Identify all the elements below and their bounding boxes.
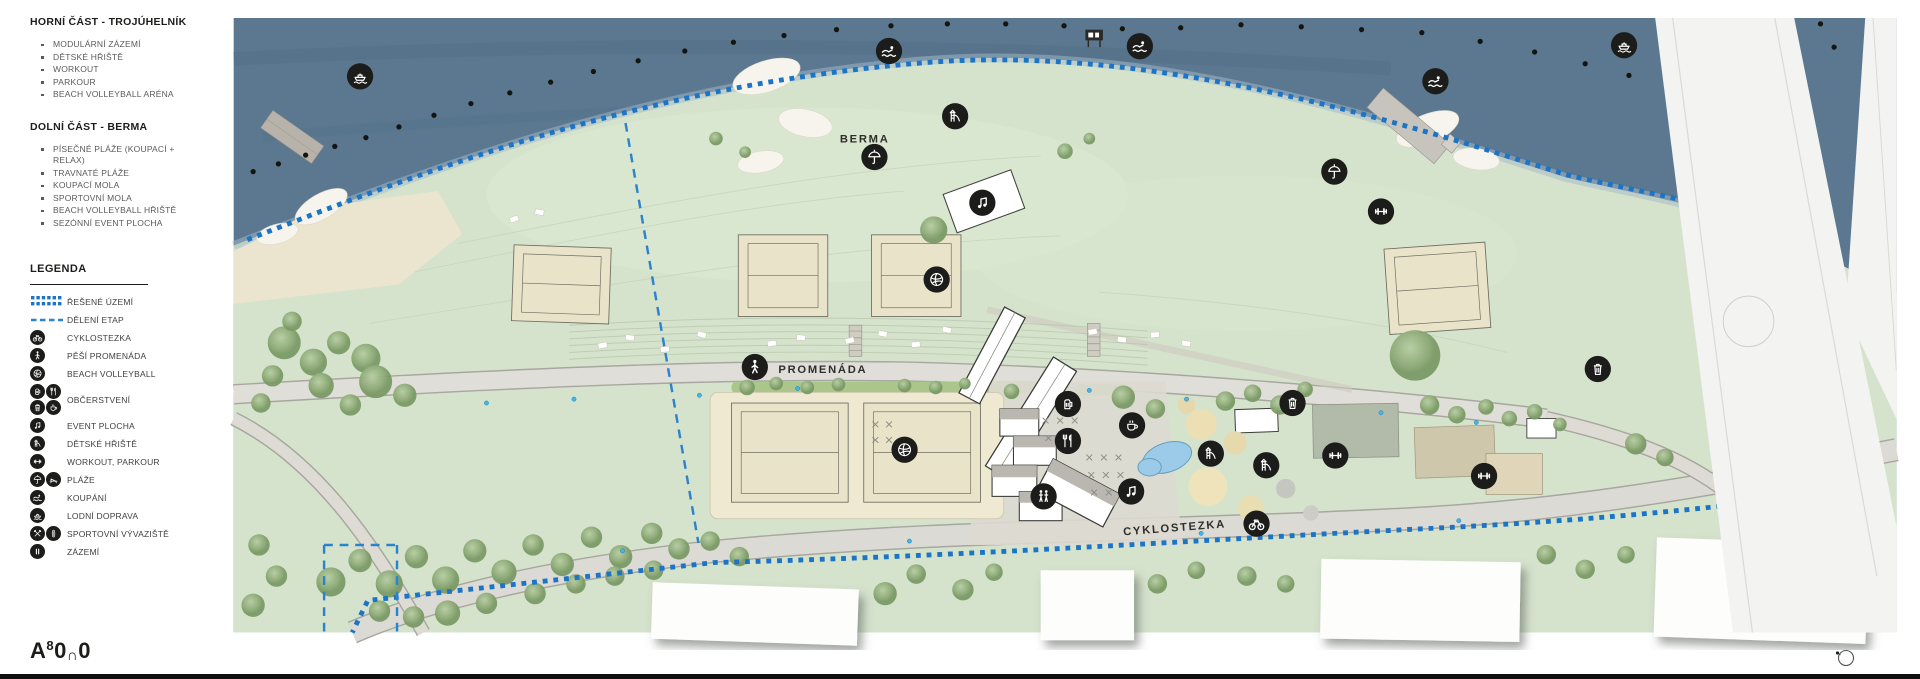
legend-row-icons <box>30 348 67 363</box>
swimmer-icon <box>876 38 902 64</box>
legend-row-icons <box>30 366 67 381</box>
volleyball-icon <box>891 437 917 463</box>
legend-row: BEACH VOLLEYBALL <box>30 366 208 381</box>
board-icon <box>46 526 61 541</box>
legend-rows: ŘEŠENÉ ÚZEMÍDĚLENÍ ETAPCYKLOSTEZKAPĚŠÍ P… <box>30 294 208 559</box>
sidebar-bullet-item: KOUPACÍ MOLA <box>40 180 208 192</box>
slide-icon <box>1198 440 1224 466</box>
section-list-lower: PÍSEČNÉ PLÁŽE (KOUPACÍ + RELAX)TRAVNATÉ … <box>30 144 208 230</box>
section-title-upper: HORNÍ ČÁST - TROJÚHELNÍK <box>30 16 208 28</box>
logo-char: ∩ <box>67 647 78 664</box>
map-label: BERMA <box>840 133 890 145</box>
court <box>738 235 827 317</box>
legend-row-icons <box>30 418 67 433</box>
bike-icon <box>1243 510 1269 536</box>
legend-row: OBČERSTVENÍ <box>30 384 208 415</box>
utensils-icon <box>1055 428 1081 454</box>
sidebar-bullet-item: PARKOUR <box>40 77 208 89</box>
legend-row-icons <box>30 472 67 487</box>
site-plan-map: BERMAPROMENÁDACYKLOSTEZKA <box>210 18 1920 650</box>
legend-row-icons <box>30 508 67 523</box>
legend-row-label: DĚLENÍ ETAP <box>67 315 124 325</box>
legend-row-label: PLÁŽE <box>67 475 95 485</box>
court <box>864 403 981 502</box>
legend-row-icons <box>30 454 67 469</box>
paddles-icon <box>30 526 45 541</box>
legend-row-label: KOUPÁNÍ <box>67 493 107 503</box>
workout-icon <box>1322 442 1348 468</box>
sidebar-bullet-item: PÍSEČNÉ PLÁŽE (KOUPACÍ + RELAX) <box>40 144 208 167</box>
trash-icon <box>1279 390 1305 416</box>
lounger-icon <box>46 472 61 487</box>
volleyball-icon <box>924 266 950 292</box>
logo-char: 0 <box>54 638 67 663</box>
legend-row-label: SPORTOVNÍ VÝVAZIŠTĚ <box>67 529 169 539</box>
court <box>511 245 611 324</box>
umbrella-icon <box>30 472 45 487</box>
court <box>731 403 848 502</box>
sidebar: HORNÍ ČÁST - TROJÚHELNÍK MODULÁRNÍ ZÁZEM… <box>30 16 208 562</box>
legend-row-icons <box>30 384 67 415</box>
workout-icon <box>1368 198 1394 224</box>
legend-title: LEGENDA <box>30 263 148 285</box>
trash-icon <box>30 400 45 415</box>
legend-row: LODNÍ DOPRAVA <box>30 508 208 523</box>
legend-row-icons <box>30 544 67 559</box>
legend-row-label: ŘEŠENÉ ÚZEMÍ <box>67 297 133 307</box>
map-label: PROMENÁDA <box>778 363 867 376</box>
swimmer-icon <box>1127 33 1153 59</box>
sidebar-bullet-item: MODULÁRNÍ ZÁZEMÍ <box>40 39 208 51</box>
beer-icon <box>30 384 45 399</box>
legend-row-label: EVENT PLOCHA <box>67 421 135 431</box>
legend-row-label: ZÁZEMÍ <box>67 547 99 557</box>
legend-row-label: PĚŠÍ PROMENÁDA <box>67 351 146 361</box>
legend-row: DĚTSKÉ HŘIŠTĚ <box>30 436 208 451</box>
legend-row: DĚLENÍ ETAP <box>30 312 208 327</box>
workout-icon <box>1471 463 1497 489</box>
sidebar-bullet-item: SPORTOVNÍ MOLA <box>40 193 208 205</box>
court <box>1384 242 1491 334</box>
umbrella-icon <box>861 144 887 170</box>
legend-row-icons <box>30 330 67 345</box>
legend-row-label: LODNÍ DOPRAVA <box>67 511 138 521</box>
legend-row: SPORTOVNÍ VÝVAZIŠTĚ <box>30 526 208 541</box>
legend-row-label: WORKOUT, PARKOUR <box>67 457 160 467</box>
dashed-line-swatch <box>30 313 64 326</box>
logo-char: 8 <box>46 638 54 653</box>
sidebar-bullet-item: SEZÓNNÍ EVENT PLOCHA <box>40 218 208 230</box>
legend-row: PĚŠÍ PROMENÁDA <box>30 348 208 363</box>
sidebar-bullet-item: WORKOUT <box>40 64 208 76</box>
slide-icon <box>942 103 968 129</box>
music-icon <box>969 190 995 216</box>
pedestrian-icon <box>742 354 768 380</box>
workout-icon <box>30 454 45 469</box>
boat-icon <box>1611 32 1637 58</box>
legend-row: EVENT PLOCHA <box>30 418 208 433</box>
facilities-icon <box>30 544 45 559</box>
coffee-icon <box>1119 412 1145 438</box>
slide-icon <box>30 436 45 451</box>
bottom-bar <box>0 674 1920 679</box>
a8000-logo: A80∩0 <box>30 638 91 664</box>
legend-row-label: CYKLOSTEZKA <box>67 333 131 343</box>
legend-row: WORKOUT, PARKOUR <box>30 454 208 469</box>
legend-row: PLÁŽE <box>30 472 208 487</box>
legend-row-icons <box>30 313 67 326</box>
umbrella-icon <box>1321 158 1347 184</box>
coffee-icon <box>46 400 61 415</box>
legend-row: CYKLOSTEZKA <box>30 330 208 345</box>
legend-row-icons <box>30 436 67 451</box>
boat-icon <box>30 508 45 523</box>
legend-row: ZÁZEMÍ <box>30 544 208 559</box>
legend-row-label: DĚTSKÉ HŘIŠTĚ <box>67 439 137 449</box>
utensils-icon <box>46 384 61 399</box>
boat-icon <box>347 63 373 89</box>
logo-char: A <box>30 638 46 663</box>
legend-row-label: BEACH VOLLEYBALL <box>67 369 156 379</box>
music-icon <box>1118 478 1144 504</box>
trash-icon <box>1585 356 1611 382</box>
legend-row: KOUPÁNÍ <box>30 490 208 505</box>
north-arrow-icon <box>1833 645 1857 669</box>
beer-icon <box>1055 391 1081 417</box>
wc-icon <box>1030 483 1056 509</box>
pedestrian-icon <box>30 348 45 363</box>
swimmer-icon <box>1422 68 1448 94</box>
legend-row-icons <box>30 295 67 308</box>
section-title-lower: DOLNÍ ČÁST - BERMA <box>30 121 208 133</box>
legend: LEGENDA ŘEŠENÉ ÚZEMÍDĚLENÍ ETAPCYKLOSTEZ… <box>30 263 208 559</box>
legend-row-icons <box>30 526 67 541</box>
sidebar-bullet-item: DĚTSKÉ HŘIŠTĚ <box>40 52 208 64</box>
sidebar-bullet-item: BEACH VOLLEYBALL ARÉNA <box>40 89 208 101</box>
bike-icon <box>30 330 45 345</box>
sidebar-bullet-item: BEACH VOLLEYBALL HŘIŠTĚ <box>40 205 208 217</box>
sidebar-bullet-item: TRAVNATÉ PLÁŽE <box>40 168 208 180</box>
logo-char: 0 <box>78 638 91 663</box>
legend-row-icons <box>30 490 67 505</box>
swimmer-icon <box>30 490 45 505</box>
music-icon <box>30 418 45 433</box>
volleyball-icon <box>30 366 45 381</box>
legend-row-label: OBČERSTVENÍ <box>67 395 130 405</box>
slide-icon <box>1253 452 1279 478</box>
dotted-area-swatch <box>30 295 64 308</box>
legend-row: ŘEŠENÉ ÚZEMÍ <box>30 294 208 309</box>
section-list-upper: MODULÁRNÍ ZÁZEMÍDĚTSKÉ HŘIŠTĚWORKOUTPARK… <box>30 39 208 101</box>
